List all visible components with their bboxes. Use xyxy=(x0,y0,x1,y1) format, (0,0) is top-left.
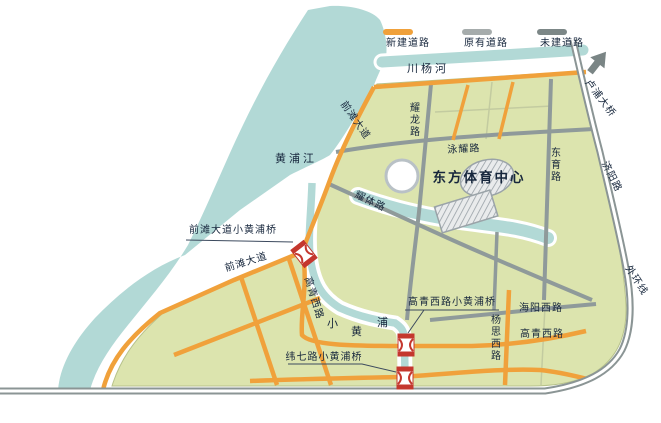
label-yaolong-road: 耀龙路 xyxy=(408,102,420,138)
label-bridge-gaoqing: 高青西路小黄浦桥 xyxy=(408,295,496,308)
label-xiaohuangpu-char3: 浦 xyxy=(377,316,391,329)
label-bridge-qiantan: 前滩大道小黄浦桥 xyxy=(189,223,277,236)
label-huangpu-river: 黄浦江 xyxy=(275,151,317,165)
label-dongyu-road: 东育路 xyxy=(549,146,561,183)
legend-swatch-existing xyxy=(462,29,492,35)
label-xiaohuangpu-char1: 小 xyxy=(327,317,341,330)
legend-label-new: 新建道路 xyxy=(386,36,430,49)
label-xiaohuangpu-char2: 黄 xyxy=(351,324,365,338)
label-haiyang-west: 海阳西路 xyxy=(519,301,563,314)
legend-label-unbuilt: 未建道路 xyxy=(540,36,584,49)
legend-swatch-new xyxy=(383,29,413,35)
label-chuanyang-river: 川杨河 xyxy=(407,61,449,75)
bridge-icon xyxy=(398,334,414,356)
map-canvas: 新建道路 原有道路 未建道路 黄浦江 川杨河 卢浦大桥 济阳路 外环线 前滩大道… xyxy=(0,0,661,423)
label-bridge-weiqi: 纬七路小黄浦桥 xyxy=(286,350,363,363)
label-sports-center: 东方体育中心 xyxy=(433,169,526,185)
label-gaoqing-west-h: 高青西路 xyxy=(520,327,564,340)
legend-label-existing: 原有道路 xyxy=(464,36,508,49)
map-svg: 新建道路 原有道路 未建道路 黄浦江 川杨河 卢浦大桥 济阳路 外环线 前滩大道… xyxy=(0,0,661,423)
bridge-icon xyxy=(397,367,413,389)
stadium-circle xyxy=(386,160,418,192)
legend: 新建道路 原有道路 未建道路 xyxy=(383,29,584,49)
label-yangsi-west: 杨思西路 xyxy=(489,313,501,362)
legend-swatch-unbuilt xyxy=(537,29,567,35)
